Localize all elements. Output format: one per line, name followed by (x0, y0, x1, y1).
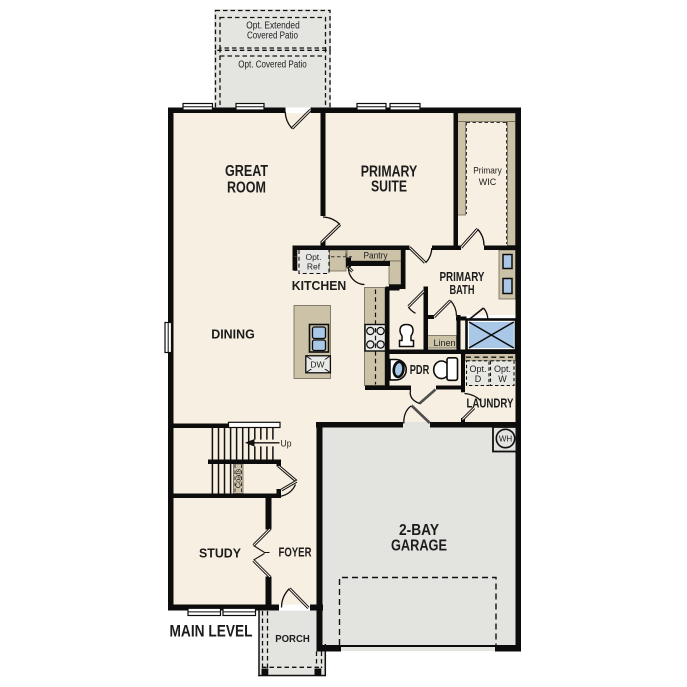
svg-text:BATH: BATH (450, 282, 475, 297)
svg-text:SUITE: SUITE (371, 179, 407, 196)
svg-text:Up: Up (281, 439, 292, 450)
svg-text:WH: WH (499, 435, 513, 444)
svg-text:STUDY: STUDY (199, 546, 241, 561)
svg-text:GARAGE: GARAGE (391, 538, 447, 555)
svg-text:PDR: PDR (410, 362, 430, 377)
svg-text:Opt.: Opt. (469, 364, 486, 374)
svg-text:Ref: Ref (307, 262, 321, 272)
svg-text:W: W (498, 374, 507, 384)
svg-text:Opt.: Opt. (305, 252, 321, 262)
svg-text:Primary: Primary (473, 166, 502, 177)
svg-text:D: D (475, 374, 482, 384)
svg-text:ROOM: ROOM (227, 180, 266, 197)
svg-text:FOYER: FOYER (279, 545, 312, 560)
svg-text:Coats: Coats (234, 468, 243, 488)
svg-text:Linen: Linen (434, 338, 456, 349)
svg-text:MAIN LEVEL: MAIN LEVEL (170, 622, 253, 640)
svg-text:WIC: WIC (479, 177, 497, 188)
svg-text:DINING: DINING (211, 327, 255, 342)
svg-text:LAUNDRY: LAUNDRY (467, 396, 514, 411)
svg-text:PORCH: PORCH (275, 633, 310, 645)
svg-text:DW: DW (310, 360, 324, 370)
svg-text:Pantry: Pantry (364, 251, 388, 262)
svg-text:Opt.: Opt. (494, 364, 511, 374)
svg-text:2-BAY: 2-BAY (399, 522, 439, 539)
svg-text:KITCHEN: KITCHEN (292, 278, 347, 293)
svg-text:Opt. Covered Patio: Opt. Covered Patio (238, 60, 307, 71)
svg-text:Covered Patio: Covered Patio (247, 31, 298, 42)
svg-text:GREAT: GREAT (225, 163, 268, 180)
